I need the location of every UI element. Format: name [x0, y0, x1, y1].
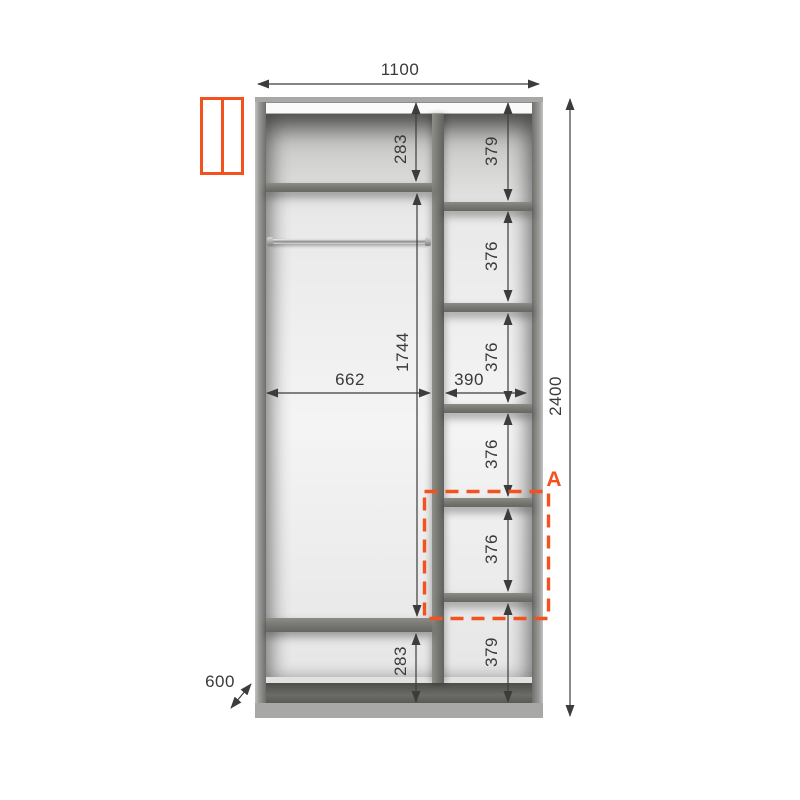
dim-right-cell-1: 379	[482, 136, 502, 166]
two-door-icon	[200, 97, 244, 175]
vertical-divider	[432, 114, 444, 683]
right-shelf-5	[444, 593, 532, 602]
dim-right-cell-5: 376	[482, 534, 502, 564]
left-shelf-top	[266, 183, 432, 192]
dim-depth: 600	[205, 672, 235, 692]
wardrobe-dimension-drawing: 1100 2400 600 283 1744 662 390 283 379 3…	[0, 0, 800, 800]
dim-left-bottom-gap: 283	[391, 646, 411, 676]
left-shelf-bottom	[266, 618, 432, 632]
dim-left-top-gap: 283	[391, 134, 411, 164]
dim-right-cell-2: 376	[482, 241, 502, 271]
left-side-panel	[255, 102, 266, 718]
door-divider-line	[221, 100, 224, 172]
dim-left-inner-width: 662	[335, 370, 365, 390]
right-side-panel	[532, 102, 543, 718]
rod-bracket-right	[425, 237, 431, 246]
bottom-panel	[255, 703, 543, 718]
wardrobe-body	[255, 97, 543, 718]
hanging-rod	[269, 239, 429, 244]
dim-total-width: 1100	[381, 60, 420, 80]
dim-right-inner-width: 390	[454, 370, 484, 390]
right-shelf-2	[444, 303, 532, 312]
rod-bracket-left	[267, 237, 273, 246]
dim-total-height: 2400	[546, 376, 566, 416]
dim-right-cell-6: 379	[482, 637, 502, 667]
dim-right-cell-3: 376	[482, 342, 502, 372]
right-shelf-4	[444, 498, 532, 507]
base-plinth	[266, 683, 532, 703]
dim-left-inner-height: 1744	[393, 332, 413, 372]
right-shelf-3	[444, 404, 532, 413]
right-shelf-1	[444, 202, 532, 211]
dim-right-cell-4: 376	[482, 439, 502, 469]
detail-a-label: A	[546, 468, 561, 492]
top-track-strip	[266, 102, 532, 114]
